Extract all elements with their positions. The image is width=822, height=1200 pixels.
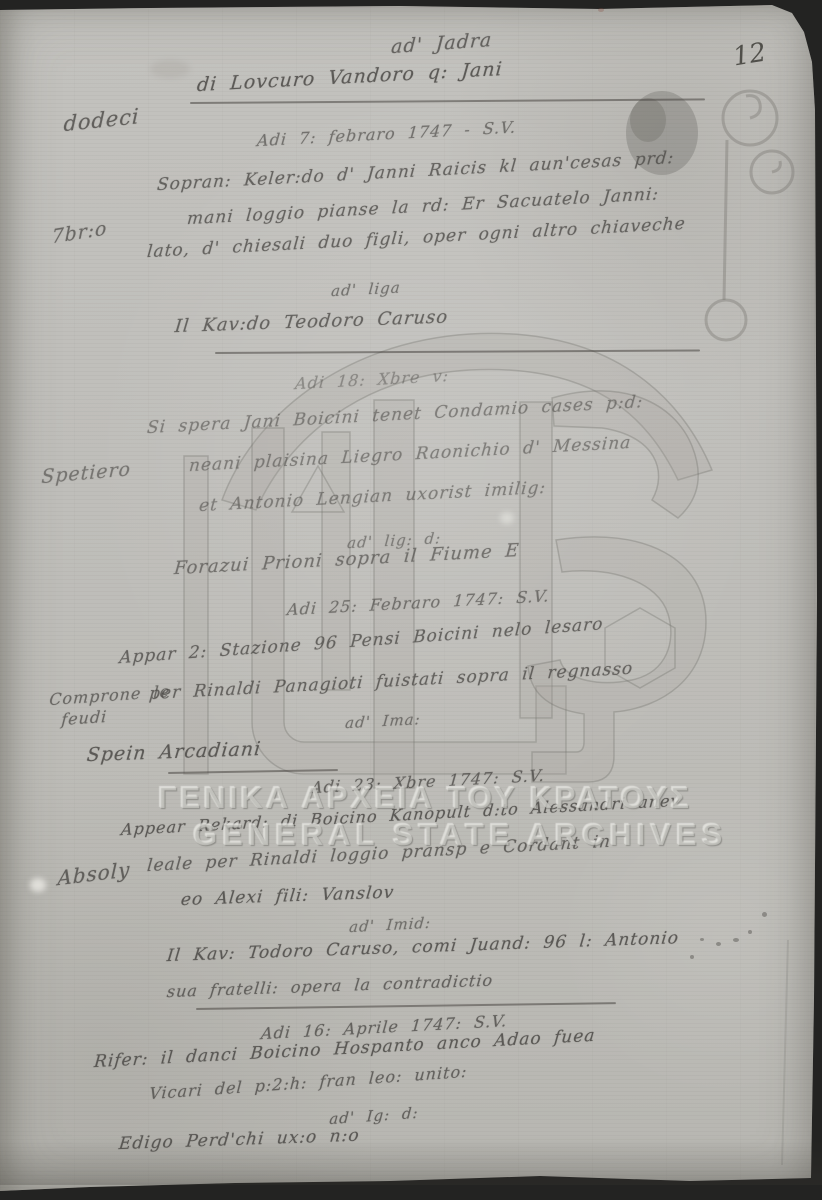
page-number: 12 (731, 38, 768, 73)
margin-note: feudi (61, 707, 108, 729)
scanned-manuscript-page: 12 ad' Jadra di Lovcuro Vandoro q: Jani … (0, 0, 822, 1200)
bottom-edge-shadow (0, 1140, 822, 1185)
archive-watermark-greek: ΓΕΝΙΚΑ ΑΡΧΕΙΑ ΤΟΥ ΚΡΑΤΟΥΣ (158, 780, 692, 816)
manuscript-line: ad' liga (330, 278, 401, 300)
archive-watermark-latin: GENERAL STATE ARCHIVES (193, 817, 727, 853)
